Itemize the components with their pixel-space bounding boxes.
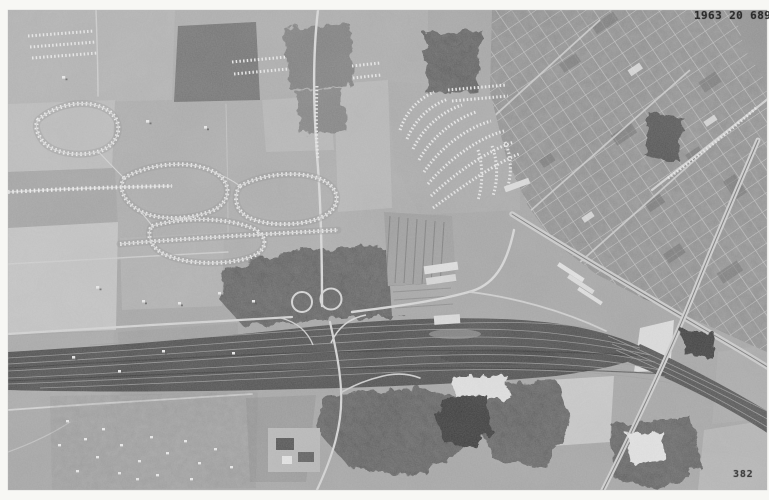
border-top: [0, 0, 769, 10]
border-bottom: [0, 490, 769, 500]
aerial-photograph: 1963 20 689 382: [0, 0, 769, 500]
film-grain: [8, 10, 767, 490]
photo-id-stamp: 1963 20 689: [694, 9, 769, 22]
aerial-photo-canvas: [0, 0, 769, 500]
frame-number-stamp: 382: [733, 469, 753, 480]
border-left: [0, 0, 8, 500]
